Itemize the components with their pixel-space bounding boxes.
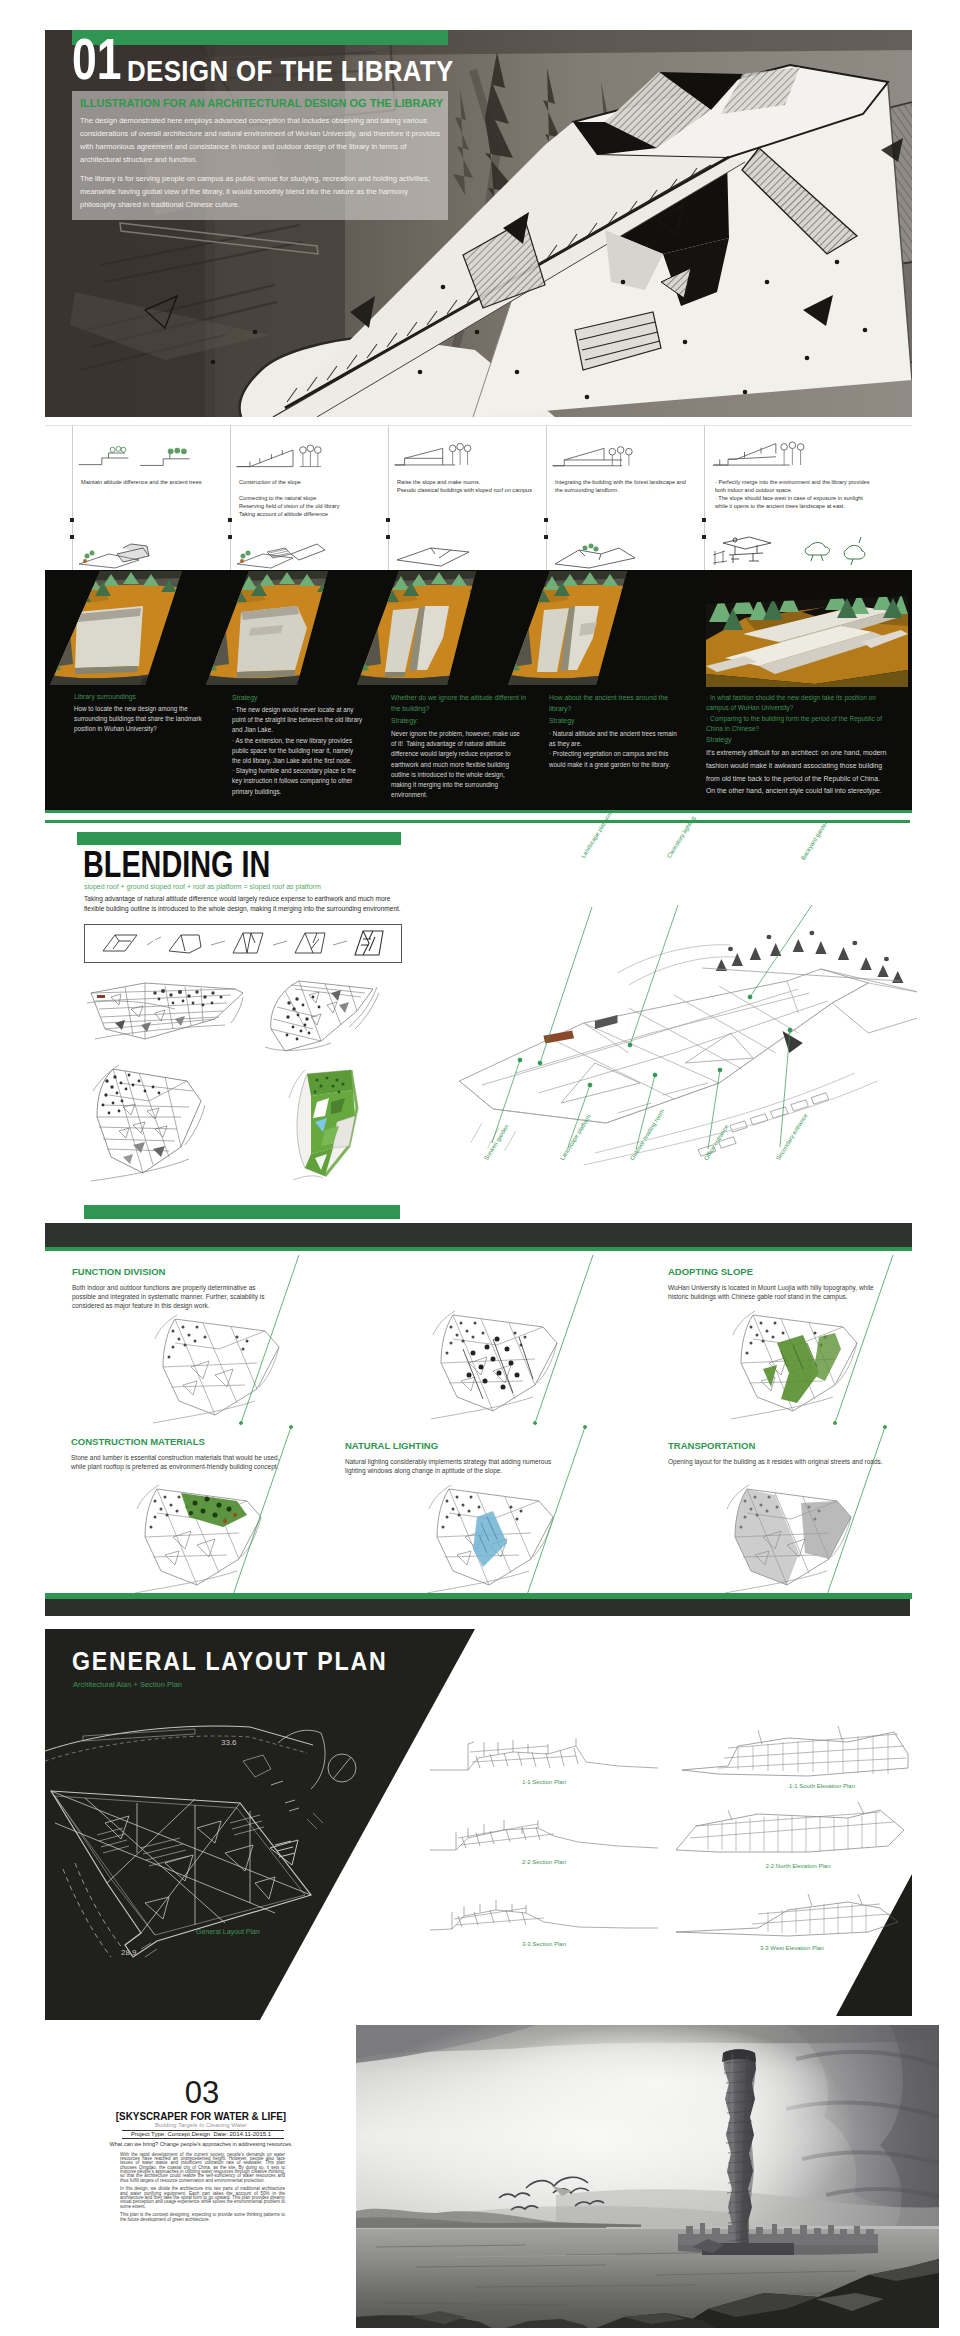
svg-text:1-1 Section Plan: 1-1 Section Plan — [522, 1779, 566, 1785]
svg-text:2-2 North Elevation Plan: 2-2 North Elevation Plan — [765, 1863, 830, 1869]
svg-text:28.9: 28.9 — [121, 1948, 137, 1957]
svg-text:2-2 Section Plan: 2-2 Section Plan — [522, 1859, 566, 1865]
svg-text:1-1 South Elevation Plan: 1-1 South Elevation Plan — [789, 1783, 855, 1789]
svg-text:3-3 Section Plan: 3-3 Section Plan — [522, 1941, 566, 1947]
svg-text:33.6: 33.6 — [221, 1738, 237, 1747]
svg-text:3-3 West Elevation Plan: 3-3 West Elevation Plan — [760, 1945, 824, 1951]
